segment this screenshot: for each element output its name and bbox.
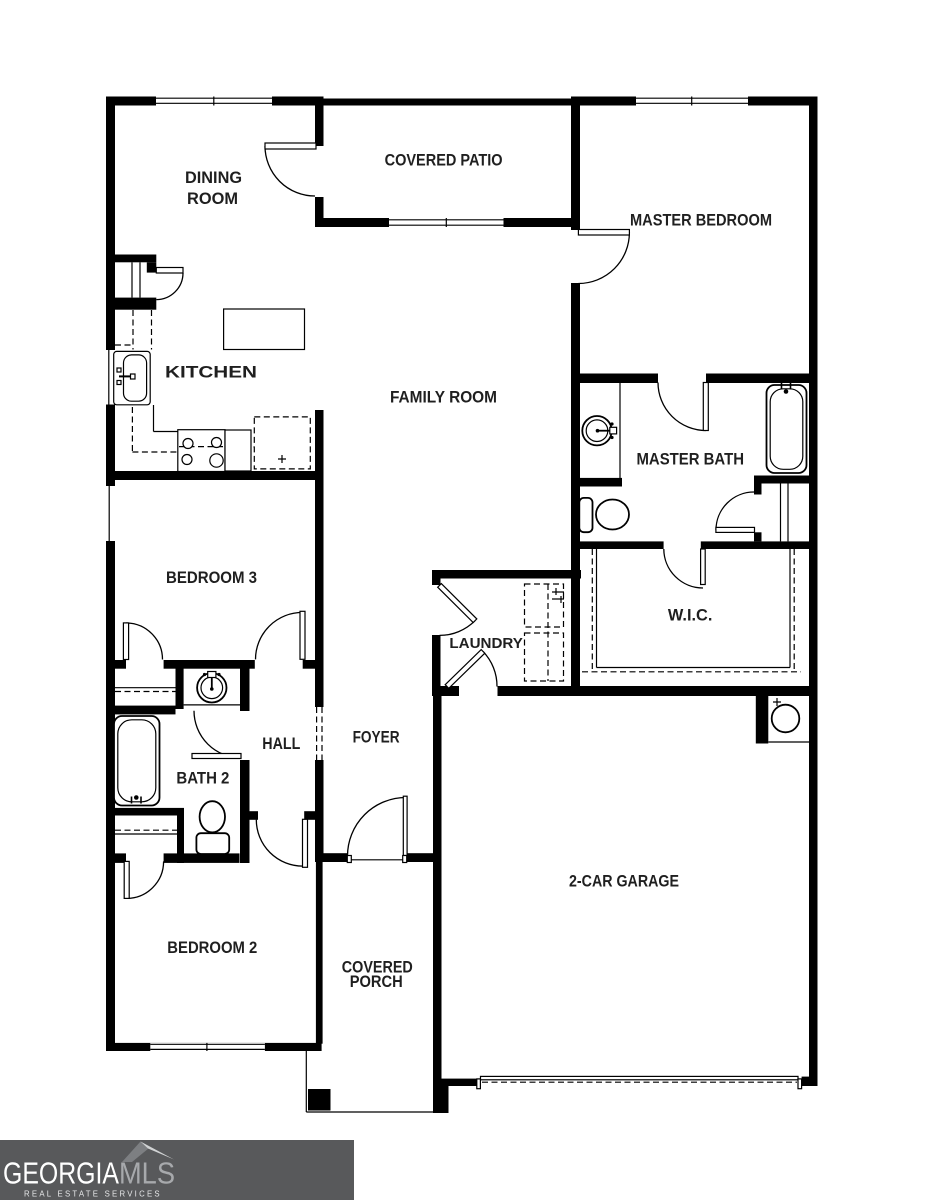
svg-text:REAL ESTATE SERVICES: REAL ESTATE SERVICES	[24, 1190, 162, 1199]
svg-text:HALL: HALL	[262, 734, 300, 753]
svg-text:MASTER BATH: MASTER BATH	[637, 450, 745, 469]
svg-text:PORCH: PORCH	[350, 972, 403, 991]
svg-text:FAMILY ROOM: FAMILY ROOM	[390, 388, 497, 407]
svg-text:BATH 2: BATH 2	[176, 769, 229, 788]
svg-text:BEDROOM 2: BEDROOM 2	[167, 938, 257, 957]
svg-text:MASTER BEDROOM: MASTER BEDROOM	[630, 211, 772, 230]
svg-text:LAUNDRY: LAUNDRY	[449, 636, 523, 652]
svg-text:KITCHEN: KITCHEN	[165, 363, 257, 382]
svg-text:2-CAR GARAGE: 2-CAR GARAGE	[569, 872, 679, 891]
svg-text:COVERED PATIO: COVERED PATIO	[385, 151, 503, 170]
svg-text:DINING: DINING	[185, 168, 242, 187]
svg-text:GEORGIA: GEORGIA	[3, 1157, 120, 1191]
svg-text:FOYER: FOYER	[353, 728, 400, 747]
svg-text:ROOM: ROOM	[187, 189, 238, 208]
svg-text:BEDROOM 3: BEDROOM 3	[166, 568, 257, 587]
svg-text:W.I.C.: W.I.C.	[668, 606, 713, 625]
